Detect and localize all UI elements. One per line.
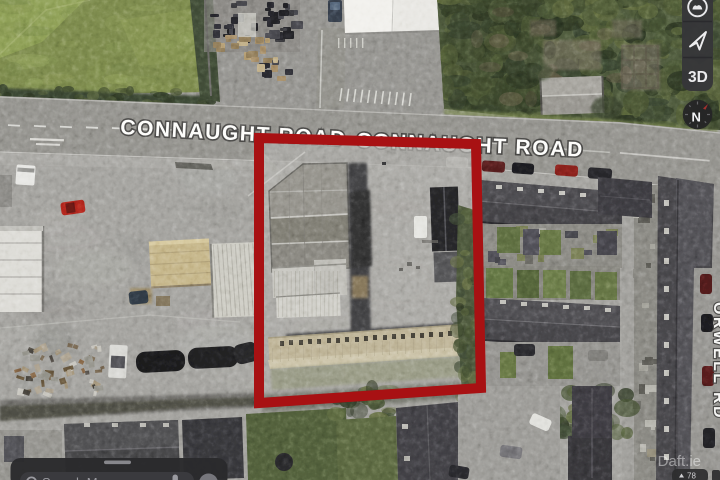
svg-text:ORWELL RD: ORWELL RD <box>710 302 720 420</box>
svg-text:N: N <box>692 110 701 125</box>
svg-text:Search Maps: Search Maps <box>42 475 119 480</box>
svg-text:Daft.ie: Daft.ie <box>658 453 701 470</box>
svg-text:3D: 3D <box>688 69 708 86</box>
svg-text:78: 78 <box>687 472 696 480</box>
